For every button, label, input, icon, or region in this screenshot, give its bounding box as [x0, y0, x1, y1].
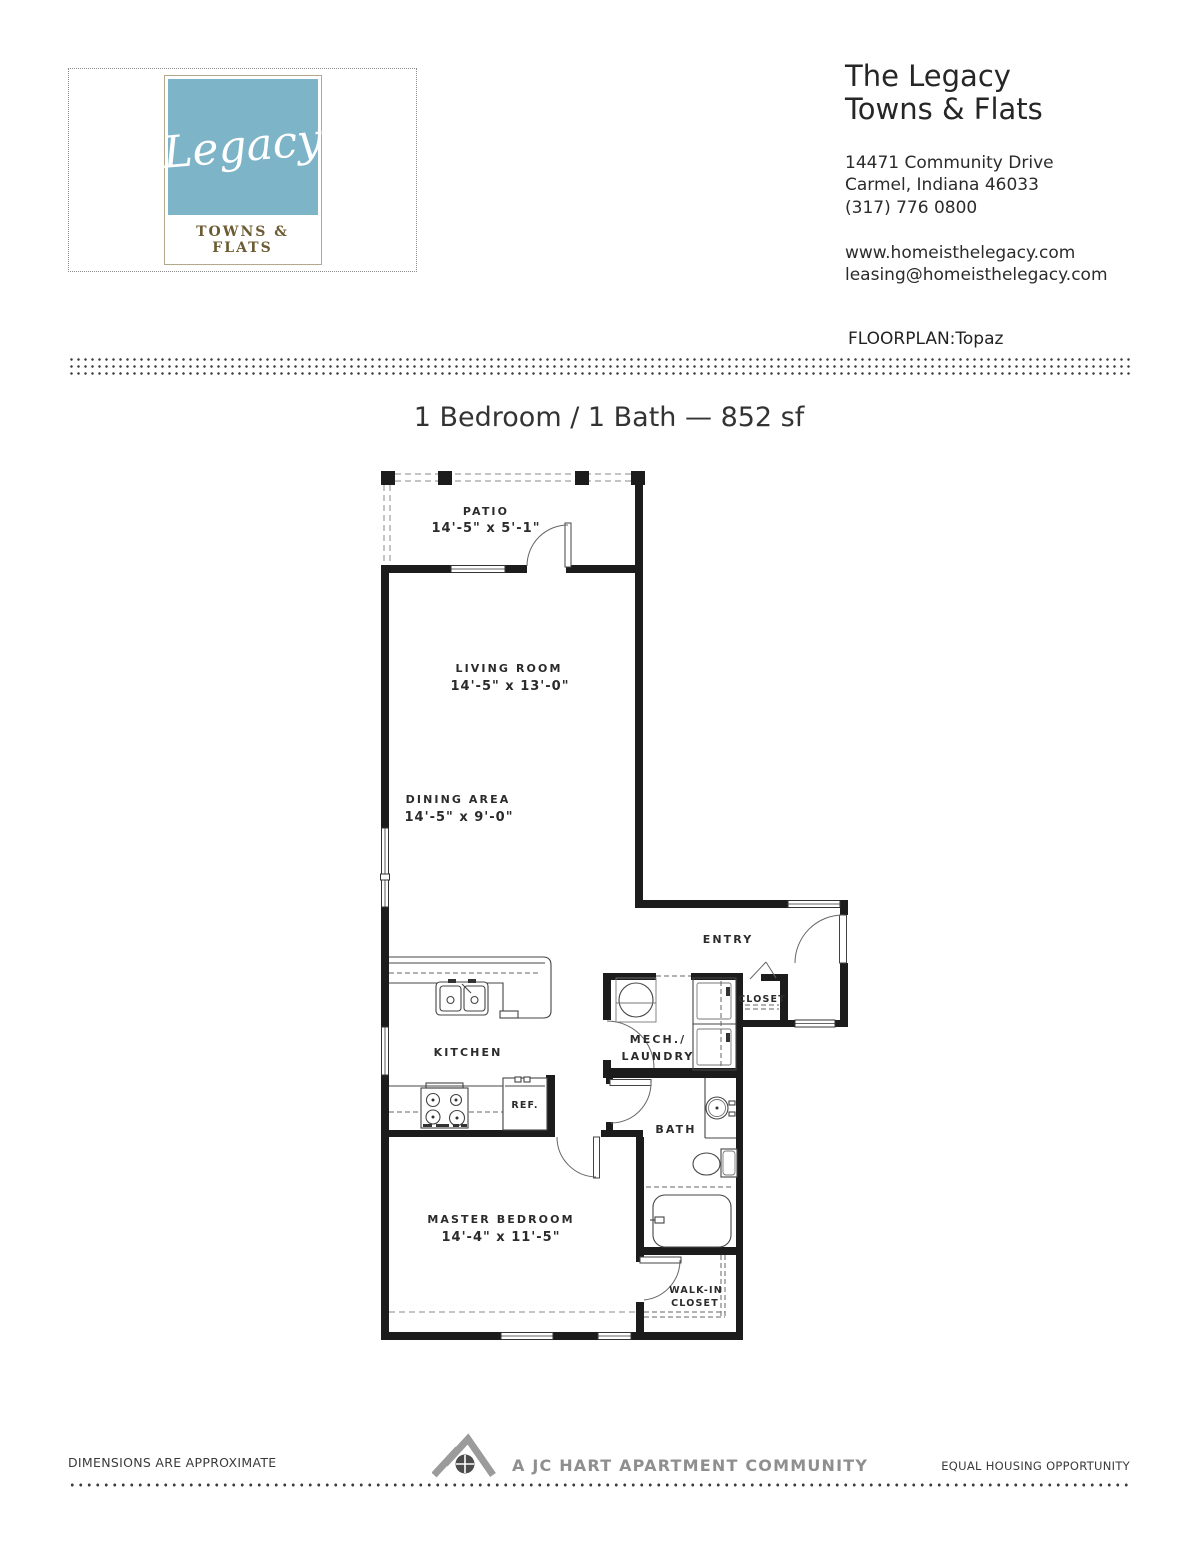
entry-window — [795, 1020, 835, 1027]
email-text: leasing@homeisthelegacy.com — [845, 264, 1108, 286]
logo-script-text: Legacy — [161, 118, 323, 176]
equal-housing-text: EQUAL HOUSING OPPORTUNITY — [941, 1459, 1130, 1473]
logo-box: Legacy TOWNS & FLATS — [68, 68, 417, 272]
dotted-divider-bottom — [68, 1478, 1132, 1487]
phone-number: (317) 776 0800 — [845, 197, 1108, 219]
flyer-page: Legacy TOWNS & FLATS The Legacy Towns & … — [0, 0, 1200, 1553]
legacy-logo: Legacy TOWNS & FLATS — [164, 75, 322, 265]
patio-label: PATIO — [463, 505, 509, 518]
master-bedroom-dims: 14'-4" x 11'-5" — [441, 1230, 560, 1245]
address-line2: Carmel, Indiana 46033 — [845, 174, 1108, 196]
bedroom-door — [557, 1137, 600, 1178]
entry-closet-label: CLOSET — [738, 994, 786, 1005]
dimensions-note: DIMENSIONS ARE APPROXIMATE — [68, 1455, 276, 1470]
bath-label: BATH — [655, 1123, 696, 1136]
walkin-closet-label-2: CLOSET — [671, 1298, 719, 1309]
entry-label: ENTRY — [703, 933, 754, 946]
bedroom-window-1 — [501, 1333, 553, 1340]
kitchen-label: KITCHEN — [434, 1046, 503, 1059]
entry-sidelight-window — [788, 901, 840, 908]
toilet — [693, 1149, 737, 1177]
master-bedroom-label: MASTER BEDROOM — [427, 1213, 574, 1226]
contact-block: The Legacy Towns & Flats 14471 Community… — [845, 60, 1108, 287]
patio-dims: 14'-5" x 5'-1" — [432, 521, 541, 536]
jchart-community-text: A JC HART APARTMENT COMMUNITY — [512, 1456, 868, 1478]
company-name: The Legacy Towns & Flats — [845, 60, 1108, 127]
patio-railing — [381, 471, 645, 569]
walkin-closet-label-1: WALK-IN — [669, 1285, 723, 1296]
dotted-divider-top — [68, 356, 1132, 377]
entry-closet-shelf — [745, 1005, 779, 1009]
washer-dryer — [693, 978, 736, 1070]
plan-title: 1 Bedroom / 1 Bath — 852 sf — [378, 402, 840, 433]
website-text: www.homeisthelegacy.com — [845, 242, 1108, 264]
dining-area-dims: 14'-5" x 9'-0" — [405, 810, 514, 825]
dining-area-label: DINING AREA — [406, 793, 511, 806]
jchart-house-icon — [432, 1430, 496, 1478]
mech-laundry-label-1: MECH./ — [630, 1033, 687, 1046]
bath-door — [610, 1080, 651, 1124]
living-room-dims: 14'-5" x 13'-0" — [450, 679, 569, 694]
floorplan-name: FLOORPLAN:Topaz — [848, 329, 1003, 349]
entry-door — [795, 915, 847, 963]
refrigerator-label: REF. — [511, 1100, 538, 1111]
jchart-branding: A JC HART APARTMENT COMMUNITY — [432, 1430, 868, 1478]
kitchen-window — [382, 1027, 389, 1075]
address-line1: 14471 Community Drive — [845, 152, 1108, 174]
kitchen-sink — [436, 979, 488, 1015]
doors — [527, 523, 847, 1300]
bath-vanity-sink — [705, 1078, 736, 1138]
company-name-line2: Towns & Flats — [845, 93, 1108, 126]
legacy-logo-mark: Legacy — [168, 79, 318, 215]
web-contact-block: www.homeisthelegacy.com leasing@homeisth… — [845, 242, 1108, 287]
stove — [389, 1083, 503, 1130]
water-heater — [616, 978, 656, 1022]
address-block: 14471 Community Drive Carmel, Indiana 46… — [845, 152, 1108, 219]
living-room-label: LIVING ROOM — [456, 662, 563, 675]
floorplan-drawing: PATIO 14'-5" x 5'-1" LIVING ROOM 14'-5" … — [378, 460, 858, 1350]
company-name-line1: The Legacy — [845, 60, 1108, 93]
bedroom-window-2 — [598, 1333, 631, 1340]
dining-window — [381, 828, 390, 907]
logo-wordmark: TOWNS & FLATS — [168, 215, 318, 261]
bathtub — [646, 1187, 731, 1247]
patio-window — [451, 566, 505, 573]
mech-laundry-label-2: LAUNDRY — [622, 1050, 695, 1063]
